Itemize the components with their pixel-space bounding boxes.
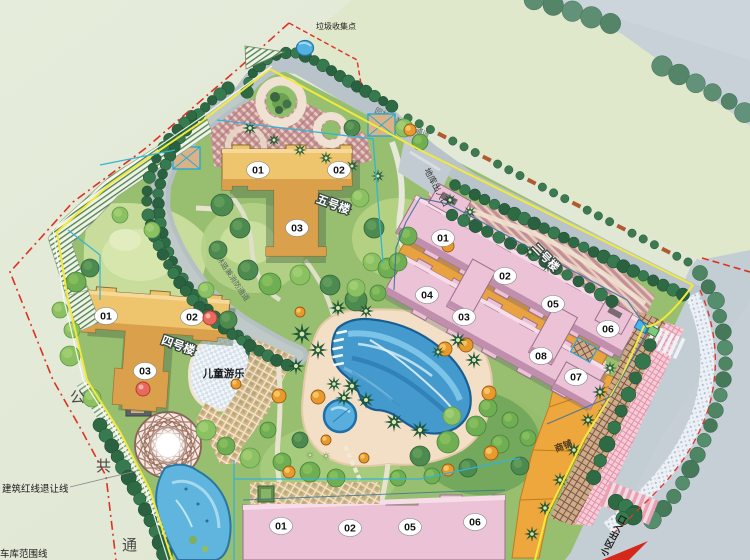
svg-text:02: 02 (344, 523, 356, 535)
svg-text:共: 共 (96, 458, 111, 475)
svg-text:05: 05 (404, 522, 416, 534)
svg-text:01: 01 (252, 165, 264, 177)
svg-text:05: 05 (547, 299, 559, 311)
svg-text:车库范围线: 车库范围线 (0, 548, 48, 560)
svg-text:03: 03 (291, 223, 303, 235)
svg-text:01: 01 (437, 233, 449, 245)
svg-text:公: 公 (70, 389, 85, 406)
svg-text:06: 06 (469, 517, 481, 529)
svg-text:03: 03 (458, 312, 470, 324)
svg-text:02: 02 (186, 312, 198, 324)
svg-text:通: 通 (122, 537, 137, 554)
svg-text:02: 02 (499, 271, 511, 283)
svg-text:03: 03 (139, 366, 151, 378)
svg-text:垃圾收集点: 垃圾收集点 (316, 21, 356, 31)
svg-text:建筑红线退让线: 建筑红线退让线 (2, 483, 69, 495)
svg-text:01: 01 (100, 311, 112, 323)
svg-text:06: 06 (602, 324, 614, 336)
svg-text:04: 04 (421, 290, 433, 302)
svg-text:07: 07 (570, 372, 582, 384)
svg-text:02: 02 (333, 165, 345, 177)
svg-text:01: 01 (275, 521, 287, 533)
svg-text:08: 08 (535, 351, 547, 363)
